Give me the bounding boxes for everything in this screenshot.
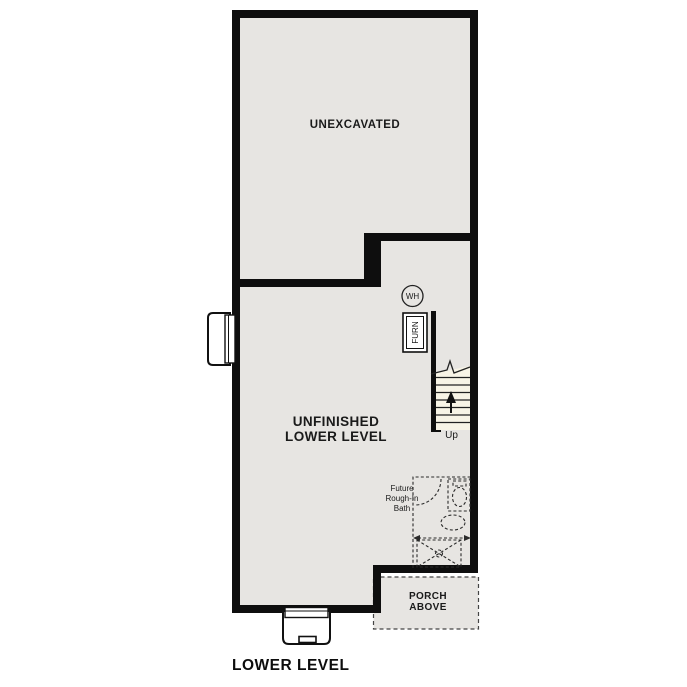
window-well-step [299, 637, 316, 643]
bath-label-line1: Future [390, 484, 414, 493]
window-well-left [208, 313, 235, 365]
porch-area: PORCH ABOVE [374, 577, 479, 629]
furnace-label: FURN [411, 321, 420, 343]
floor-plan-drawing: PORCH ABOVE [0, 0, 687, 687]
wall-unexcavated-divider [232, 279, 381, 287]
egress-window-bottom [283, 608, 330, 645]
plan-title: LOWER LEVEL [232, 657, 349, 675]
bath-label-line2: Rough-In [386, 494, 419, 503]
lower-level-label-line1: UNFINISHED [293, 414, 380, 429]
window-bottom [285, 608, 328, 618]
water-heater: WH [402, 286, 423, 307]
wall-porch-notch-top [373, 565, 478, 573]
wall-right [470, 10, 478, 573]
furnace: FURN [403, 313, 427, 352]
wall-stair-side [431, 311, 436, 432]
floor-fills [236, 14, 474, 609]
wall-porch-notch-side [373, 565, 381, 613]
floor-plan-page: PORCH ABOVE [0, 0, 687, 687]
staircase: Up [431, 361, 470, 441]
wall-top [232, 10, 478, 18]
lower-level-label-line2: LOWER LEVEL [285, 429, 387, 444]
porch-label-line1: PORCH [409, 591, 447, 602]
porch-label-line2: ABOVE [409, 602, 447, 613]
lower-level-area [236, 283, 377, 609]
bath-label-line3: Bath [394, 504, 410, 513]
wall-mechanical-top [364, 233, 478, 241]
unexcavated-label: UNEXCAVATED [310, 119, 400, 131]
wall-divider-jog [364, 233, 381, 287]
window-left [225, 315, 235, 363]
stairs-up-label: Up [445, 430, 458, 441]
water-heater-label: WH [406, 292, 420, 301]
wall-left [232, 10, 240, 613]
